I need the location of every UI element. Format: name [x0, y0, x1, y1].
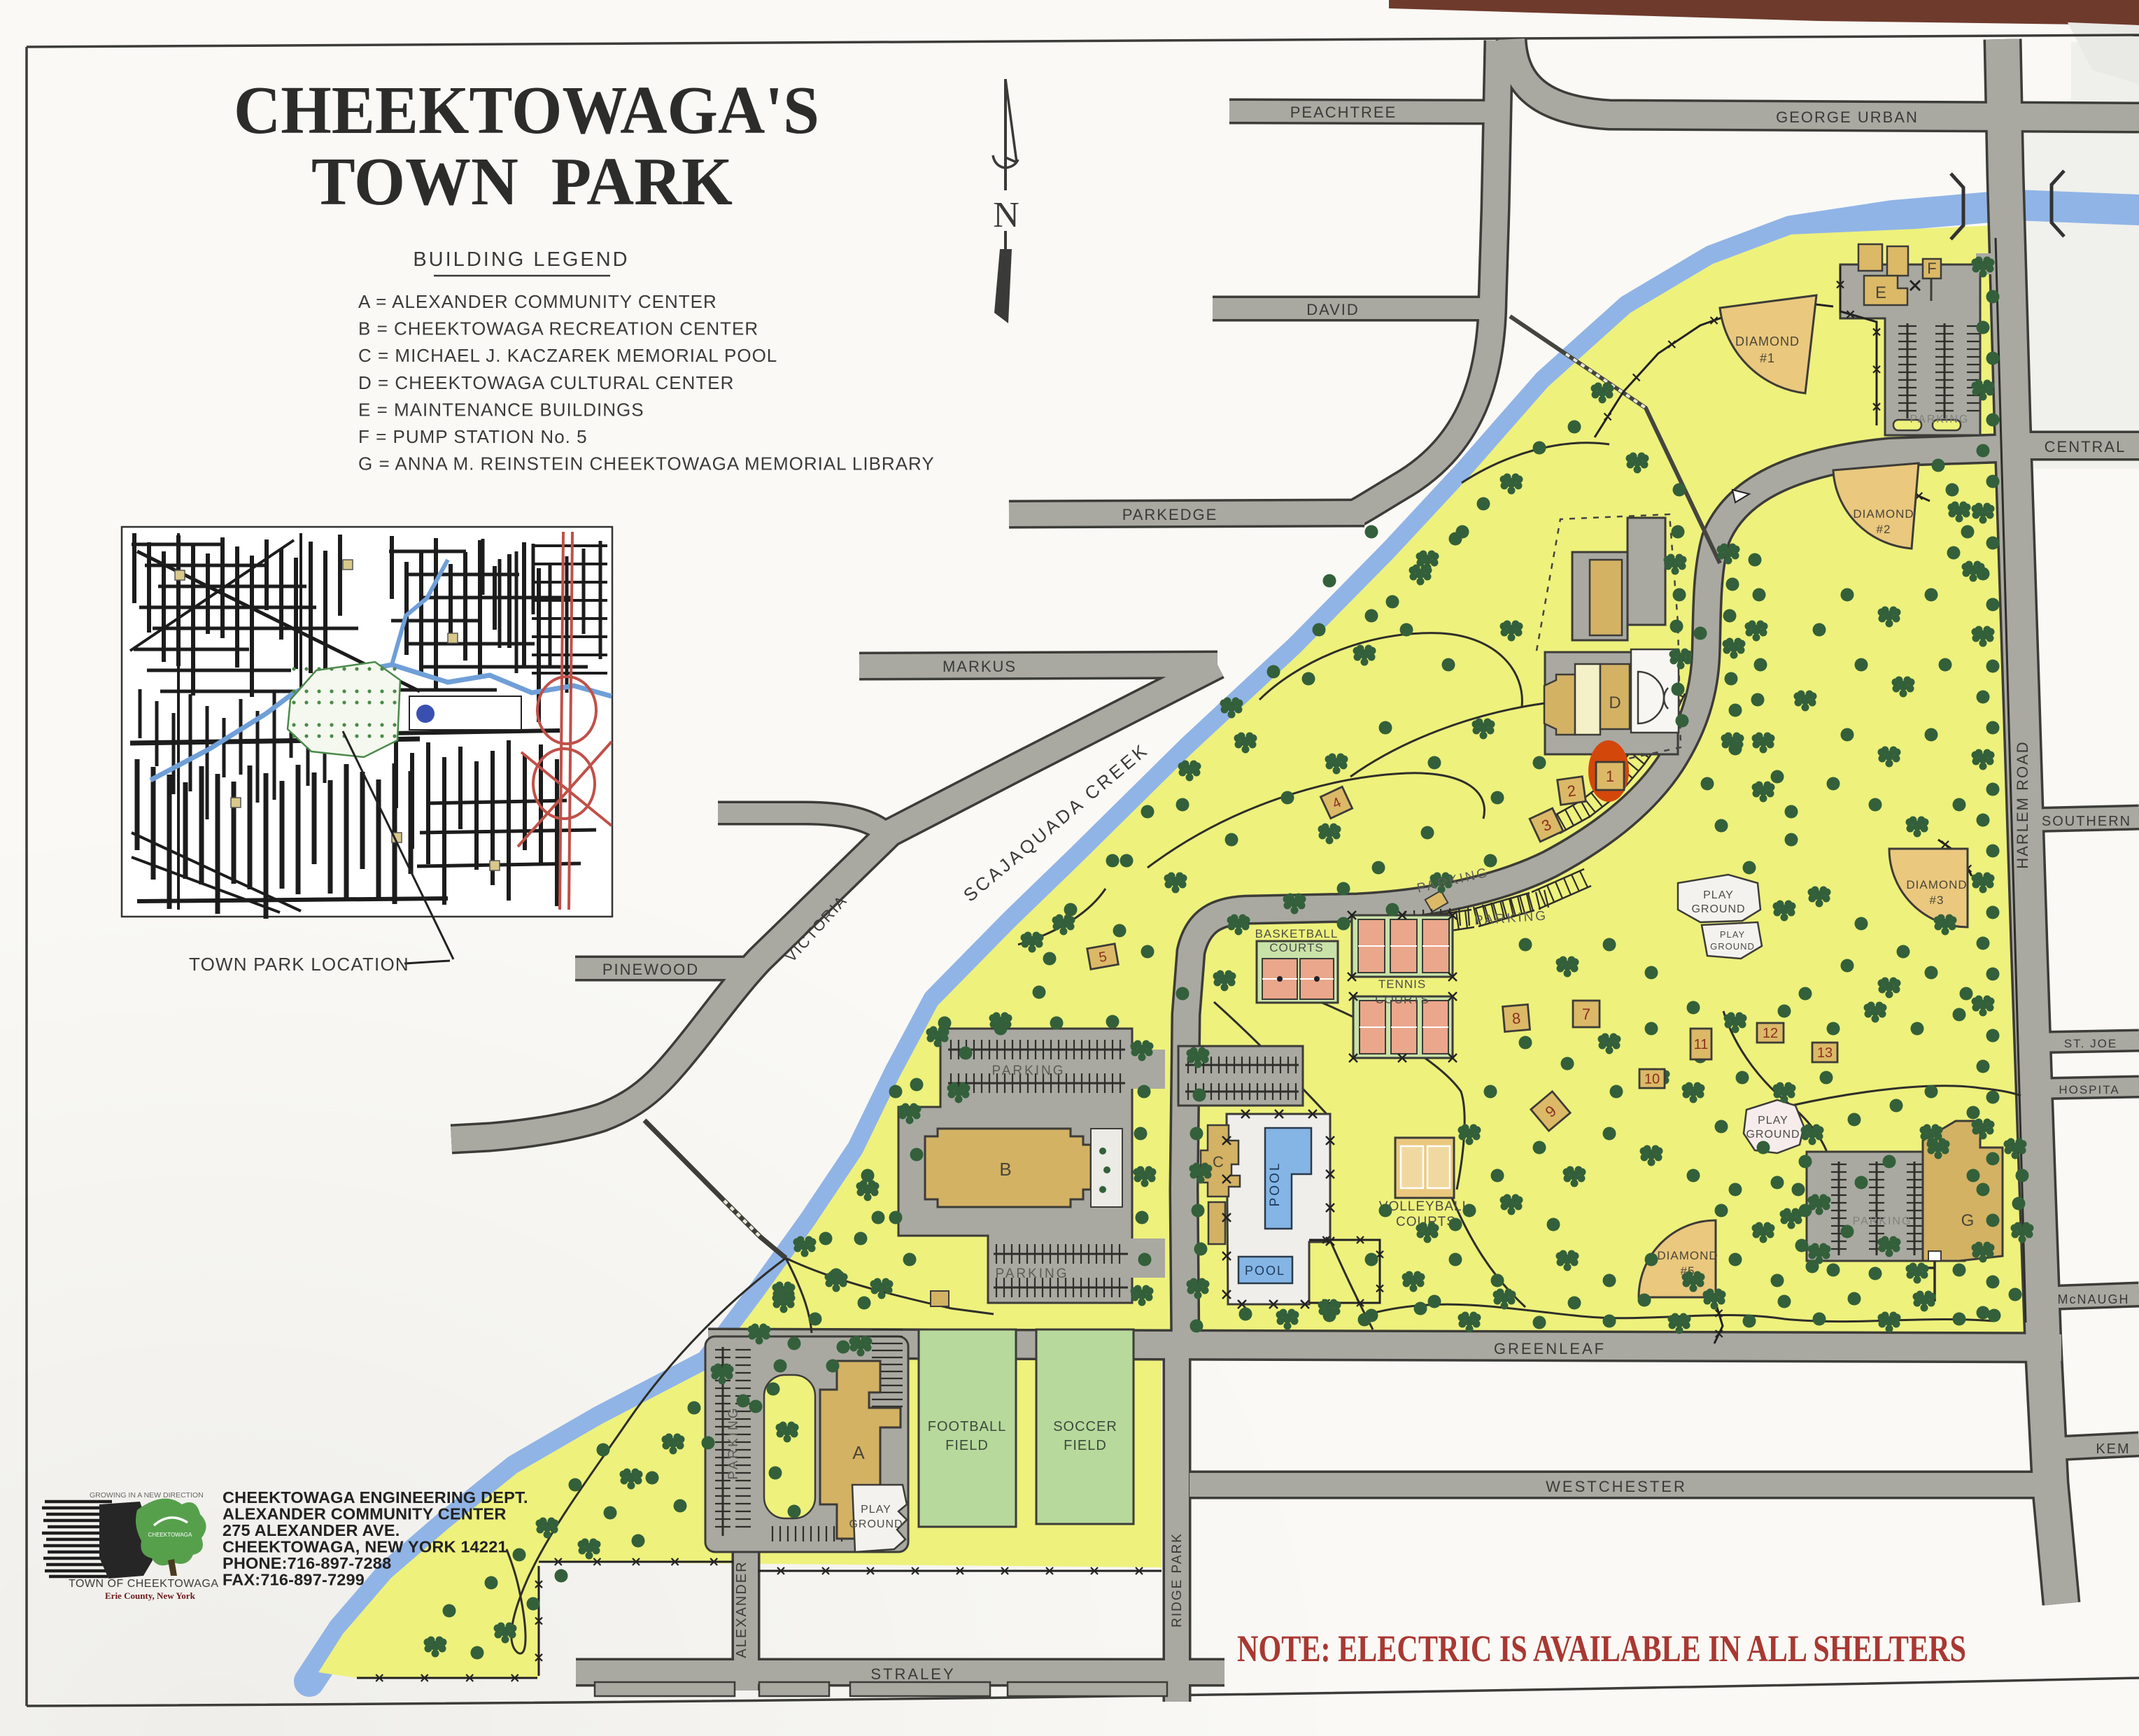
svg-text:A: A [852, 1442, 865, 1463]
svg-text:PARKING: PARKING [726, 1406, 741, 1479]
svg-text:D = CHEEKTOWAGA CULTURAL CENTE: D = CHEEKTOWAGA CULTURAL CENTER [358, 372, 734, 393]
svg-text:B = CHEEKTOWAGA RECREATION CEN: B = CHEEKTOWAGA RECREATION CENTER [358, 318, 758, 339]
svg-text:CHEEKTOWAGA'S: CHEEKTOWAGA'S [234, 73, 819, 148]
svg-text:GROUND: GROUND [849, 1518, 903, 1530]
svg-text:C: C [1213, 1153, 1224, 1171]
svg-text:GROWING IN A NEW DIRECTION: GROWING IN A NEW DIRECTION [90, 1491, 204, 1499]
svg-text:G: G [1961, 1211, 1975, 1230]
svg-text:POOL: POOL [1245, 1264, 1285, 1278]
svg-text:PARKEDGE: PARKEDGE [1122, 506, 1218, 523]
svg-text:RIDGE PARK: RIDGE PARK [1170, 1532, 1185, 1628]
svg-text:B: B [999, 1159, 1011, 1180]
svg-text:PLAY: PLAY [861, 1504, 891, 1516]
svg-text:11: 11 [1694, 1037, 1709, 1052]
svg-text:F: F [1927, 260, 1936, 277]
svg-text:SOUTHERN: SOUTHERN [2042, 814, 2131, 829]
svg-text:GROUND: GROUND [1710, 941, 1755, 952]
svg-text:1: 1 [1606, 768, 1614, 785]
svg-text:TOWN OF CHEEKTOWAGA: TOWN OF CHEEKTOWAGA [69, 1578, 219, 1590]
svg-text:#2: #2 [1877, 523, 1891, 536]
svg-text:E: E [1875, 283, 1886, 302]
svg-text:KEM: KEM [2096, 1441, 2130, 1457]
svg-text:D: D [1609, 693, 1621, 712]
svg-text:GREENLEAF: GREENLEAF [1494, 1340, 1606, 1357]
svg-text:HARLEM ROAD: HARLEM ROAD [2014, 740, 2031, 868]
svg-text:McNAUGH: McNAUGH [2058, 1292, 2130, 1306]
svg-text:E = MAINTENANCE BUILDINGS: E = MAINTENANCE BUILDINGS [358, 399, 644, 420]
svg-text:CHEEKTOWAGA: CHEEKTOWAGA [148, 1532, 192, 1538]
svg-text:12: 12 [1763, 1026, 1778, 1041]
svg-text:#3: #3 [1930, 894, 1944, 907]
svg-text:STRALEY: STRALEY [870, 1665, 955, 1683]
svg-text:ST. JOE: ST. JOE [2064, 1037, 2117, 1050]
svg-text:ALEXANDER COMMUNITY CENTER: ALEXANDER COMMUNITY CENTER [223, 1505, 507, 1523]
svg-text:DIAMOND: DIAMOND [1853, 507, 1914, 521]
svg-text:BASKETBALL: BASKETBALL [1255, 927, 1339, 940]
svg-text:ALEXANDER: ALEXANDER [734, 1560, 749, 1658]
svg-text:DAVID: DAVID [1306, 301, 1360, 318]
svg-text:PARKING: PARKING [991, 1064, 1065, 1078]
svg-text:C = MICHAEL J. KACZAREK MEMORI: C = MICHAEL J. KACZAREK MEMORIAL POOL [358, 345, 777, 366]
svg-text:POOL: POOL [1268, 1162, 1283, 1207]
svg-text:N: N [993, 195, 1019, 235]
svg-text:PARKING: PARKING [995, 1266, 1068, 1281]
svg-text:VOLLEYBALL: VOLLEYBALL [1379, 1199, 1470, 1214]
svg-text:WESTCHESTER: WESTCHESTER [1546, 1478, 1687, 1495]
svg-text:Erie County, New York: Erie County, New York [105, 1590, 196, 1601]
svg-text:PARKING: PARKING [1910, 414, 1970, 425]
svg-text:NOTE: ELECTRIC IS AVAILABLE IN: NOTE: ELECTRIC IS AVAILABLE IN ALL SHELT… [1237, 1628, 1966, 1670]
svg-text:DIAMOND: DIAMOND [1735, 334, 1800, 348]
svg-text:F = PUMP STATION No. 5: F = PUMP STATION No. 5 [358, 426, 588, 447]
svg-text:PEACHTREE: PEACHTREE [1290, 104, 1397, 121]
svg-text:COURTS: COURTS [1375, 993, 1429, 1006]
svg-text:#1: #1 [1760, 351, 1775, 365]
svg-text:PHONE:716-897-7288: PHONE:716-897-7288 [223, 1554, 391, 1572]
svg-text:TENNIS: TENNIS [1378, 978, 1426, 991]
svg-text:COURTS: COURTS [1269, 941, 1323, 954]
svg-text:TOWN PARK: TOWN PARK [311, 144, 733, 219]
svg-text:PARKING: PARKING [1853, 1215, 1912, 1227]
svg-text:G = ANNA M. REINSTEIN CHEEKTOW: G = ANNA M. REINSTEIN CHEEKTOWAGA MEMORI… [358, 453, 935, 474]
svg-text:CHEEKTOWAGA ENGINEERING DEPT.: CHEEKTOWAGA ENGINEERING DEPT. [223, 1488, 528, 1506]
svg-text:13: 13 [1817, 1045, 1833, 1061]
svg-text:SOCCER: SOCCER [1053, 1419, 1117, 1434]
svg-text:275 ALEXANDER AVE.: 275 ALEXANDER AVE. [223, 1521, 400, 1539]
svg-text:8: 8 [1511, 1009, 1521, 1027]
svg-text:CHEEKTOWAGA, NEW YORK 14221: CHEEKTOWAGA, NEW YORK 14221 [223, 1538, 507, 1556]
svg-text:GROUND: GROUND [1691, 903, 1745, 915]
svg-text:DIAMOND: DIAMOND [1906, 878, 1967, 891]
svg-text:FOOTBALL: FOOTBALL [928, 1419, 1006, 1434]
svg-text:A = ALEXANDER COMMUNITY CENTER: A = ALEXANDER COMMUNITY CENTER [358, 291, 717, 312]
svg-text:FIELD: FIELD [1064, 1438, 1107, 1453]
svg-text:GEORGE URBAN: GEORGE URBAN [1776, 108, 1919, 126]
svg-text:TOWN PARK LOCATION: TOWN PARK LOCATION [189, 954, 409, 975]
svg-text:GROUND: GROUND [1746, 1129, 1800, 1141]
svg-text:FIELD: FIELD [945, 1438, 989, 1453]
svg-text:10: 10 [1644, 1072, 1660, 1087]
svg-text:DIAMOND: DIAMOND [1657, 1249, 1718, 1262]
svg-text:7: 7 [1582, 1005, 1590, 1023]
svg-text:BUILDING LEGEND: BUILDING LEGEND [413, 248, 629, 271]
svg-text:PINEWOOD: PINEWOOD [602, 961, 699, 978]
svg-text:PLAY: PLAY [1720, 929, 1745, 940]
svg-text:HOSPITA: HOSPITA [2059, 1083, 2119, 1096]
svg-text:CENTRAL: CENTRAL [2045, 438, 2126, 456]
svg-text:PLAY: PLAY [1703, 889, 1734, 901]
svg-text:PLAY: PLAY [1758, 1115, 1788, 1127]
svg-text:MARKUS: MARKUS [943, 658, 1017, 675]
svg-text:FAX:716-897-7299: FAX:716-897-7299 [223, 1571, 365, 1589]
